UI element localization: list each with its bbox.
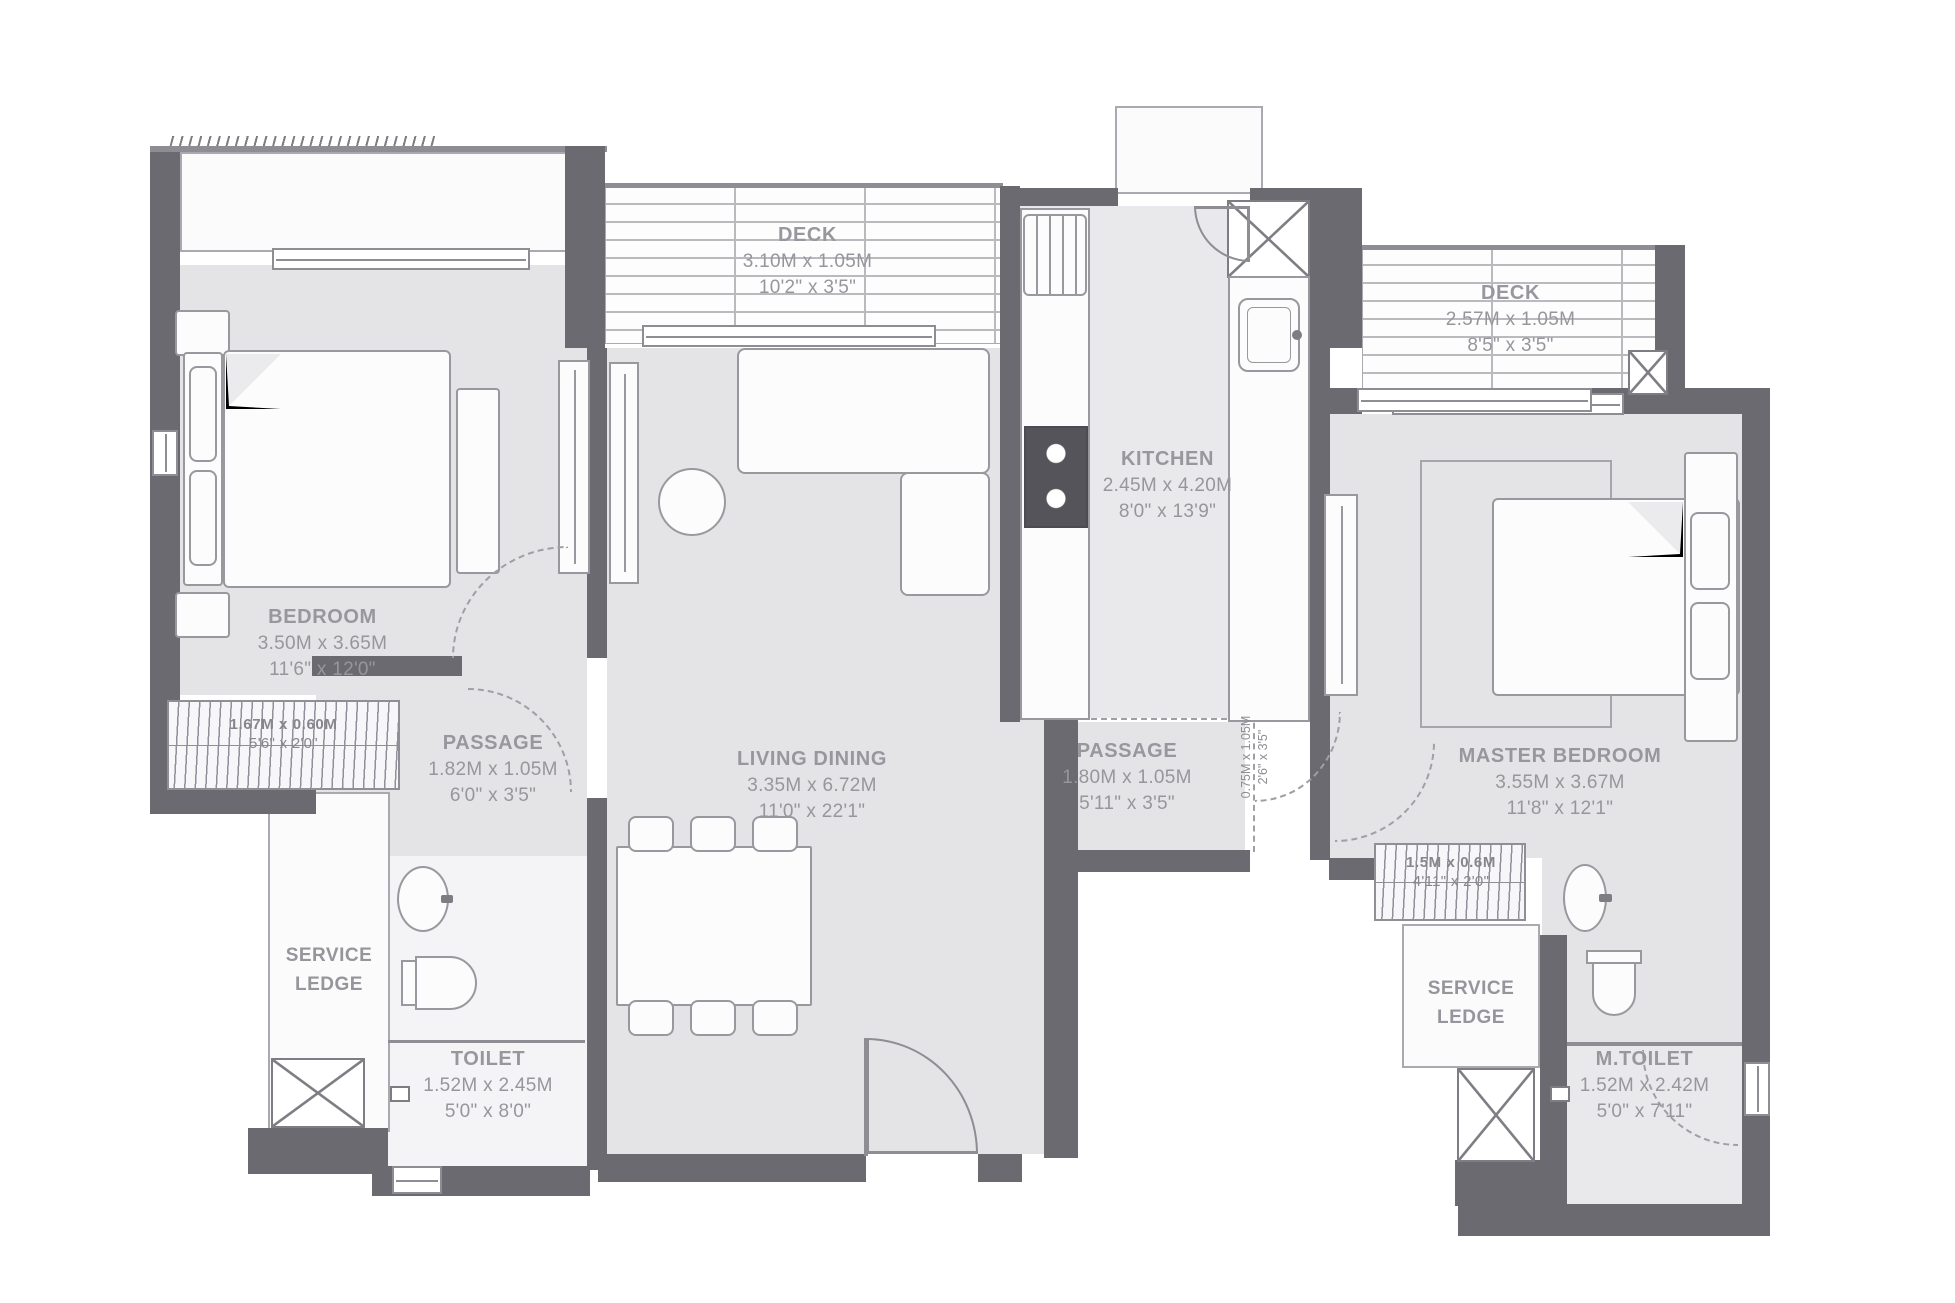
wall <box>1018 188 1118 206</box>
window <box>272 248 530 270</box>
dining-table <box>616 846 812 1006</box>
wall <box>978 1154 1022 1182</box>
room-name: TOILET <box>398 1048 578 1071</box>
wc-bowl <box>1592 962 1636 1016</box>
sofa-chaise <box>900 472 990 596</box>
coffee-table <box>658 468 726 536</box>
wall <box>565 146 605 348</box>
window <box>1744 1062 1770 1116</box>
wardrobe-right-label: 1.5M x 0.6M 4'11" x 2'0" <box>1378 852 1524 890</box>
bench <box>456 388 500 574</box>
wardrobe-dim-imperial: 4'11" x 2'0" <box>1378 873 1524 890</box>
shaft-xbox <box>271 1058 365 1128</box>
room-dim-metric: 3.50M x 3.65M <box>195 633 450 655</box>
tv-unit <box>609 362 639 584</box>
wall <box>248 1128 388 1174</box>
room-name: BEDROOM <box>195 606 450 629</box>
room-dim-metric: 1.52M x 2.42M <box>1552 1075 1737 1097</box>
counter-line <box>388 1040 585 1043</box>
niche-dim-metric: 0.75M x 1.05M <box>1238 716 1256 799</box>
door-leaf <box>864 1038 868 1156</box>
room-dim-metric: 3.10M x 1.05M <box>695 251 920 273</box>
service-ledge-left-label: SERVICE LEDGE <box>268 942 390 999</box>
duct-box <box>1115 106 1263 194</box>
passage-right-label: PASSAGE 1.80M x 1.05M 5'11" x 3'5" <box>1032 740 1222 815</box>
washbasin <box>1563 864 1607 932</box>
wardrobe-strip <box>558 360 590 574</box>
wall <box>1362 245 1660 250</box>
dining-chair <box>752 1000 798 1036</box>
wardrobe-door-line <box>574 370 576 564</box>
master-bedroom-label: MASTER BEDROOM 3.55M x 3.67M 11'8" x 12'… <box>1425 745 1695 820</box>
living-dining-label: LIVING DINING 3.35M x 6.72M 11'0" x 22'1… <box>692 748 932 823</box>
dining-chair <box>628 816 674 852</box>
pillow <box>189 470 217 566</box>
room-name: MASTER BEDROOM <box>1425 745 1695 768</box>
wall <box>1322 388 1362 414</box>
room-dim-metric: 1.80M x 1.05M <box>1032 767 1222 789</box>
wall <box>1567 1042 1742 1046</box>
wall <box>1458 1204 1770 1236</box>
room-dim-metric: 2.45M x 4.20M <box>1085 475 1250 497</box>
sink-tap <box>1292 330 1302 340</box>
service-line: SERVICE <box>1402 975 1540 1004</box>
shaft-xbox <box>1628 350 1668 395</box>
wall <box>1310 188 1362 348</box>
service-ledge-right-label: SERVICE LEDGE <box>1402 975 1540 1032</box>
room-dim-metric: 2.57M x 1.05M <box>1398 309 1623 331</box>
blanket-fold <box>226 354 281 409</box>
kitchen-label: KITCHEN 2.45M x 4.20M 8'0" x 13'9" <box>1085 448 1250 523</box>
room-name: LIVING DINING <box>692 748 932 771</box>
dining-chair <box>628 1000 674 1036</box>
sink-basin <box>1247 307 1291 363</box>
window <box>152 430 178 476</box>
room-name: PASSAGE <box>1032 740 1222 763</box>
top-ledge <box>180 152 603 252</box>
room-dim-metric: 1.52M x 2.45M <box>398 1075 578 1097</box>
wall <box>150 146 607 152</box>
wardrobe-door-line <box>1341 506 1343 684</box>
wardrobe-dim-metric: 1.67M x 0.60M <box>177 716 390 733</box>
service-line: SERVICE <box>268 942 390 971</box>
pillow <box>189 366 217 462</box>
service-line: LEDGE <box>1402 1004 1540 1033</box>
tv-unit-line <box>624 374 626 572</box>
basin-tap <box>441 895 453 903</box>
wardrobe-left-label: 1.67M x 0.60M 5'6" x 2'0" <box>177 714 390 752</box>
room-dim-imperial: 8'0" x 13'9" <box>1085 501 1250 523</box>
room-dim-metric: 1.82M x 1.05M <box>398 759 588 781</box>
bedside-table <box>175 310 230 356</box>
room-name: DECK <box>1398 282 1623 305</box>
pillow <box>1690 602 1730 680</box>
bedroom-label: BEDROOM 3.50M x 3.65M 11'6" x 12'0" <box>195 606 450 681</box>
wall <box>587 798 607 1170</box>
room-dim-imperial: 5'0" x 7'11" <box>1552 1101 1737 1123</box>
sofa <box>737 348 990 474</box>
wall <box>150 790 316 814</box>
room-dim-imperial: 11'6" x 12'0" <box>195 659 450 681</box>
room-name: KITCHEN <box>1085 448 1250 471</box>
wall <box>1078 850 1250 872</box>
deck1-label: DECK 3.10M x 1.05M 10'2" x 3'5" <box>695 224 920 299</box>
dining-chair <box>690 1000 736 1036</box>
wall <box>598 1154 866 1182</box>
window <box>1357 388 1592 412</box>
room-dim-imperial: 8'5" x 3'5" <box>1398 335 1623 357</box>
basin-tap <box>1599 894 1612 902</box>
wall <box>1000 186 1020 722</box>
wall <box>1455 1160 1540 1206</box>
passage-left-label: PASSAGE 1.82M x 1.05M 6'0" x 3'5" <box>398 732 588 807</box>
wall <box>605 183 1003 188</box>
room-dim-metric: 3.35M x 6.72M <box>692 775 932 797</box>
shaft-xbox <box>1457 1068 1535 1162</box>
kitchen-sink <box>1238 298 1300 372</box>
washbasin <box>397 866 449 932</box>
window <box>642 325 936 347</box>
fridge <box>1023 214 1087 296</box>
master-wardrobe-strip <box>1324 494 1358 696</box>
blanket-fold <box>1628 502 1683 557</box>
niche-dim-imperial: 2'6" x 3'5" <box>1255 716 1273 799</box>
toilet-label: TOILET 1.52M x 2.45M 5'0" x 8'0" <box>398 1048 578 1123</box>
hob <box>1024 426 1088 528</box>
room-name: DECK <box>695 224 920 247</box>
pillow <box>1690 512 1730 590</box>
room-dim-imperial: 5'0" x 8'0" <box>398 1101 578 1123</box>
wc-bowl <box>415 956 477 1010</box>
window <box>392 1166 442 1194</box>
room-dim-imperial: 6'0" x 3'5" <box>398 785 588 807</box>
room-dim-imperial: 5'11" x 3'5" <box>1032 793 1222 815</box>
room-dim-imperial: 11'8" x 12'1" <box>1425 798 1695 820</box>
wardrobe-dim-imperial: 5'6" x 2'0" <box>177 735 390 752</box>
bed-headboard <box>1684 452 1738 742</box>
room-dim-imperial: 11'0" x 22'1" <box>692 801 932 823</box>
room-name: M.TOILET <box>1552 1048 1737 1071</box>
room-dim-metric: 3.55M x 3.67M <box>1425 772 1695 794</box>
room-dim-imperial: 10'2" x 3'5" <box>695 277 920 299</box>
wardrobe-dim-metric: 1.5M x 0.6M <box>1378 854 1524 871</box>
mtoilet-label: M.TOILET 1.52M x 2.42M 5'0" x 7'11" <box>1552 1048 1737 1123</box>
wall <box>587 348 607 658</box>
niche-label: 0.75M x 1.05M 2'6" x 3'5" <box>1210 707 1300 807</box>
deck2-label: DECK 2.57M x 1.05M 8'5" x 3'5" <box>1398 282 1623 357</box>
service-line: LEDGE <box>268 971 390 1000</box>
room-name: PASSAGE <box>398 732 588 755</box>
floor-plan: BEDROOM 3.50M x 3.65M 11'6" x 12'0" DECK… <box>0 0 1955 1303</box>
